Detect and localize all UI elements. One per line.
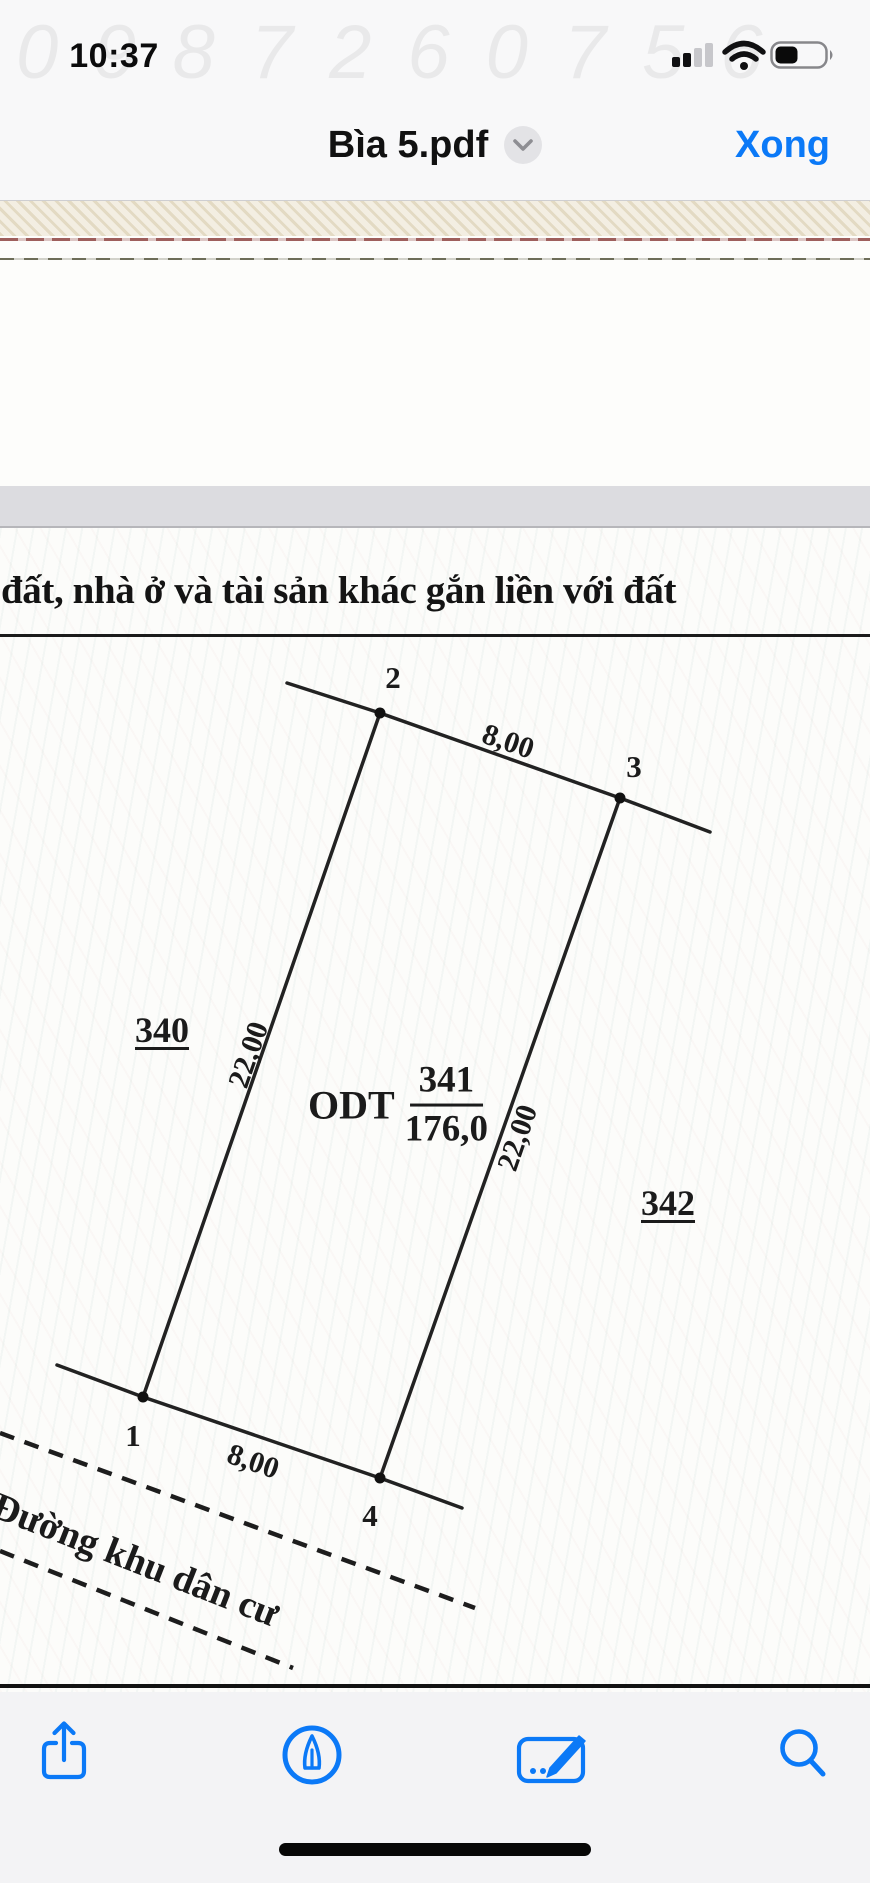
neighbor-plot-340: 340 <box>135 1009 189 1051</box>
plot-number-area-fraction: 341 176,0 <box>405 1061 488 1150</box>
page-border-line-red <box>0 238 870 241</box>
nav-bar: Bìa 5.pdf Xong <box>0 90 870 201</box>
corner-point-3 <box>615 793 626 804</box>
page-bottom-border <box>0 1684 870 1688</box>
chevron-down-icon <box>513 139 533 152</box>
title-menu-button[interactable] <box>504 126 542 164</box>
fill-sign-button[interactable] <box>513 1725 597 1792</box>
share-icon <box>36 1718 92 1782</box>
page-decorative-band <box>0 200 870 236</box>
page-border-line-olive <box>0 258 870 260</box>
pdf-viewer-screen: 0987260756 10:37 Bìa 5.pdf Xong đất <box>0 0 870 1883</box>
boundary-top <box>287 683 710 832</box>
bottom-toolbar <box>0 1692 870 1883</box>
plot-code: ODT <box>308 1082 395 1129</box>
cellular-signal-icon <box>672 40 720 68</box>
status-time: 10:37 <box>52 37 176 76</box>
point-label-4: 4 <box>362 1498 378 1534</box>
battery-icon <box>770 41 836 69</box>
wifi-icon <box>722 40 766 70</box>
neighbor-plot-342: 342 <box>641 1182 695 1224</box>
markup-button[interactable] <box>280 1723 344 1790</box>
point-label-1: 1 <box>125 1418 141 1454</box>
point-label-2: 2 <box>385 660 401 696</box>
corner-point-1 <box>138 1392 149 1403</box>
pdf-page-previous <box>0 200 870 486</box>
home-indicator[interactable] <box>279 1843 591 1856</box>
share-button[interactable] <box>36 1718 92 1785</box>
search-button[interactable] <box>777 1728 829 1787</box>
done-button[interactable]: Xong <box>735 90 830 200</box>
page-separator <box>0 486 870 528</box>
plot-designation: ODT 341 176,0 <box>308 1061 488 1150</box>
markup-pen-icon <box>280 1723 344 1787</box>
corner-point-2 <box>375 708 386 719</box>
plot-area: 176,0 <box>405 1107 488 1150</box>
signature-icon <box>513 1725 597 1789</box>
search-icon <box>777 1728 829 1784</box>
corner-point-4 <box>375 1473 386 1484</box>
point-label-3: 3 <box>626 749 642 785</box>
boundary-bottom <box>57 1365 462 1508</box>
plot-number: 341 <box>410 1061 484 1107</box>
pdf-page-diagram: đất, nhà ở và tài sản khác gắn liền với … <box>0 528 870 1692</box>
document-title: Bìa 5.pdf <box>328 124 488 167</box>
